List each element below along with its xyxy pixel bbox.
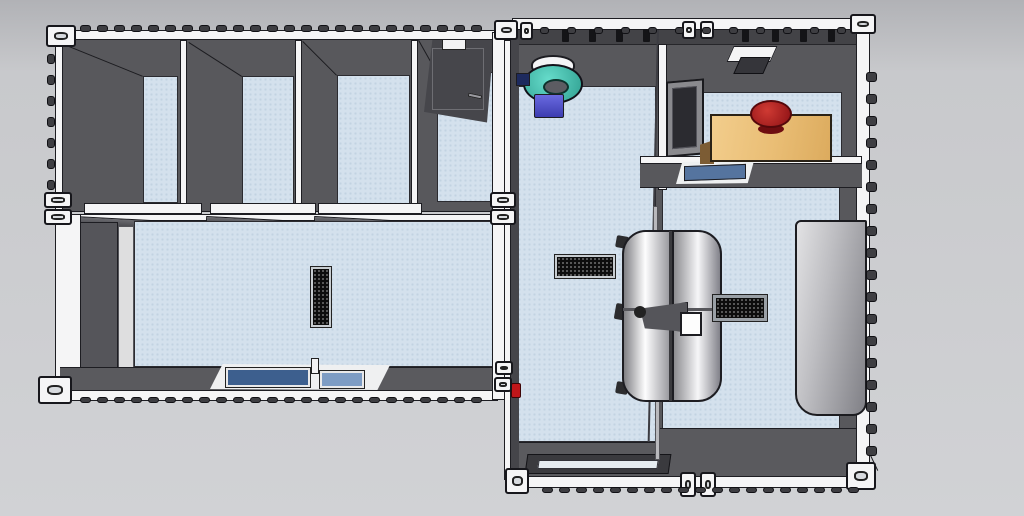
corrugation-bump [97, 25, 108, 32]
corrugation-bump [675, 27, 684, 34]
corrugation-bump [199, 397, 210, 403]
corrugation-bump [148, 397, 159, 403]
corner-casting [700, 472, 716, 497]
corrugation-bump [182, 397, 193, 403]
storage-bench[interactable] [795, 220, 867, 416]
corrugation-bump [695, 487, 706, 493]
corrugation-bump [866, 314, 877, 324]
corrugation-bump [335, 397, 346, 403]
corrugation-bump [318, 25, 329, 32]
corner-casting [494, 377, 512, 392]
corrugation-bump [866, 226, 877, 236]
clinic-west-wall [504, 40, 511, 480]
model-viewport[interactable] [0, 0, 1024, 516]
corrugation-bump [352, 25, 363, 32]
corrugation-bump [866, 138, 877, 148]
clinic-south-wall-east [658, 428, 860, 478]
corrugation-bump [756, 27, 765, 34]
corrugation-bump [437, 397, 448, 403]
corrugation-bump [216, 25, 227, 32]
corner-casting [846, 462, 876, 490]
corrugation-bump [47, 54, 55, 64]
corrugation-bump [267, 397, 278, 403]
corrugation-bump [233, 397, 244, 403]
corner-casting [495, 361, 513, 375]
corrugation-bump [610, 487, 621, 493]
corrugation-bump [797, 487, 808, 493]
corrugation-bump [729, 27, 738, 34]
corrugation-bump [866, 446, 877, 456]
corrugation-bump [131, 397, 142, 403]
corrugation-bump [540, 27, 549, 34]
corrugation-bump [661, 487, 672, 493]
corrugation-bump [567, 27, 576, 34]
corrugation-bump [114, 397, 125, 403]
corrugation-bump [284, 25, 295, 32]
corrugation-bump [386, 25, 397, 32]
corrugation-bump [335, 25, 346, 32]
corrugation-bump [627, 487, 638, 493]
corrugation-bump [47, 117, 55, 127]
corrugation-bump [648, 27, 657, 34]
corrugation-bump [47, 75, 55, 85]
corrugation-bump [369, 25, 380, 32]
corrugation-bump [866, 336, 877, 346]
corrugation-bump [814, 487, 825, 493]
corrugation-bump [471, 25, 482, 32]
roof-clamp-bracket [772, 29, 779, 42]
fire-extinguisher[interactable] [511, 383, 521, 398]
corrugation-bump [866, 292, 877, 302]
corrugation-bump [837, 27, 846, 34]
corrugation-bump [386, 397, 397, 403]
corrugation-bump [594, 27, 603, 34]
corner-casting [505, 468, 529, 494]
roof-clamp-bracket [800, 29, 807, 42]
roof-clamp-bracket [742, 29, 749, 42]
corrugation-bump [866, 116, 877, 126]
corrugation-bump [866, 160, 877, 170]
corrugation-bump [165, 397, 176, 403]
wall-vent-grille[interactable] [713, 295, 767, 321]
corrugation-bump [454, 25, 465, 32]
corrugation-bump [866, 248, 877, 258]
corner-casting [520, 22, 533, 40]
corner-casting [490, 209, 516, 225]
office-window-glass [672, 86, 697, 149]
corrugation-bump [576, 487, 587, 493]
exam-table-arm-knob [634, 306, 646, 318]
corrugation-bump [47, 180, 55, 190]
corrugation-bump [403, 397, 414, 403]
exam-table-pipe-south [655, 398, 660, 460]
south-slot-window[interactable] [537, 460, 658, 469]
corrugation-bump [729, 487, 740, 493]
corrugation-bump [644, 487, 655, 493]
corrugation-bump [783, 27, 792, 34]
corrugation-bump [318, 397, 329, 403]
wall-mount-box [516, 73, 530, 86]
office-window-frame[interactable] [666, 78, 704, 157]
corner-casting [44, 192, 72, 208]
corrugation-bump [866, 270, 877, 280]
corrugation-bump [780, 487, 791, 493]
corrugation-bump [559, 487, 570, 493]
corner-casting [46, 25, 76, 47]
corner-casting [680, 472, 696, 497]
corner-casting [38, 376, 72, 404]
corner-casting [490, 192, 516, 208]
corrugation-bump [621, 27, 630, 34]
corrugation-bump [866, 204, 877, 214]
floor-drain-grille-2[interactable] [555, 255, 615, 278]
corrugation-bump [284, 397, 295, 403]
corrugation-bump [80, 397, 91, 403]
corrugation-bump [80, 25, 91, 32]
corrugation-bump [712, 487, 723, 493]
corrugation-bump [866, 424, 877, 434]
corrugation-bump [420, 397, 431, 403]
corrugation-bump [47, 138, 55, 148]
corrugation-bump [216, 397, 227, 403]
corrugation-bump [420, 25, 431, 32]
corrugation-bump [454, 397, 465, 403]
pass-through-skylight[interactable] [684, 164, 746, 181]
corrugation-bump [182, 25, 193, 32]
corrugation-bump [866, 94, 877, 104]
corner-casting [44, 209, 72, 225]
corrugation-bump [866, 72, 877, 82]
clinic-west-wall-inner [511, 40, 519, 478]
corrugation-bump [267, 25, 278, 32]
corrugation-bump [866, 358, 877, 368]
corrugation-bump [678, 487, 689, 493]
corrugation-bump [437, 25, 448, 32]
corrugation-bump [114, 25, 125, 32]
corrugation-bump [148, 25, 159, 32]
corrugation-bump [593, 487, 604, 493]
corrugation-bump [199, 25, 210, 32]
soap-dispenser-box[interactable] [534, 94, 564, 118]
corrugation-bump [746, 487, 757, 493]
corrugation-bump [866, 402, 877, 412]
roof-clamp-bracket [828, 29, 835, 42]
sink-basin-opening [543, 79, 569, 95]
corrugation-bump [131, 25, 142, 32]
corrugation-bump [471, 397, 482, 403]
corrugation-bump [542, 487, 553, 493]
corrugation-bump [233, 25, 244, 32]
corner-casting [682, 21, 696, 39]
corrugation-bump [352, 397, 363, 403]
corrugation-bump [831, 487, 842, 493]
corrugation-bump [250, 25, 261, 32]
corrugation-bump [763, 487, 774, 493]
corrugation-bump [866, 182, 877, 192]
corrugation-bump [301, 397, 312, 403]
corrugation-bump [866, 380, 877, 390]
corrugation-bump [403, 25, 414, 32]
corrugation-bump [848, 487, 859, 493]
office-chair[interactable] [750, 100, 792, 128]
corrugation-bump [810, 27, 819, 34]
corrugation-bump [301, 25, 312, 32]
corrugation-bump [250, 397, 261, 403]
corrugation-bump [165, 25, 176, 32]
corner-casting [494, 20, 518, 40]
corrugation-bump [47, 159, 55, 169]
corrugation-bump [97, 397, 108, 403]
corrugation-bump [702, 27, 711, 34]
corrugation-bump [47, 96, 55, 106]
exam-table-arm-face [680, 312, 702, 336]
corrugation-bump [369, 397, 380, 403]
corner-casting [850, 14, 876, 34]
